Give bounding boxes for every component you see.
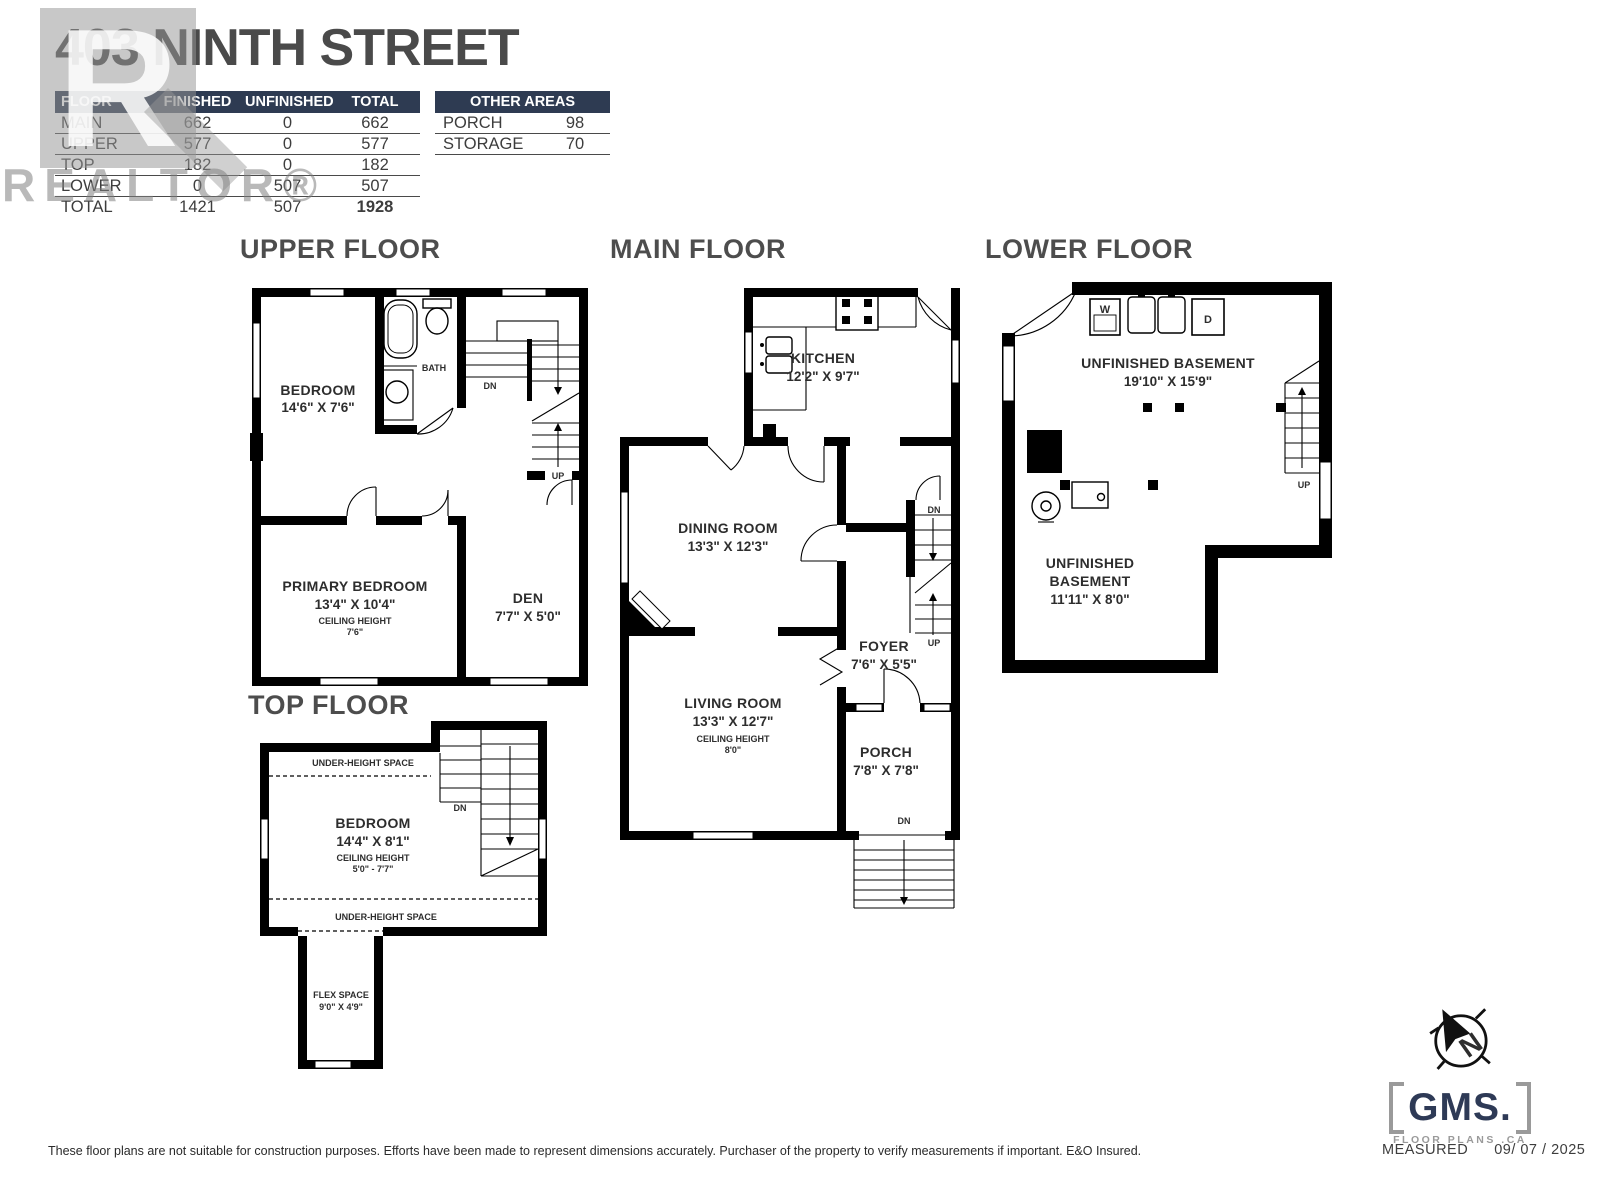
cell-total: 1928 <box>330 198 420 217</box>
dining-room-label: DINING ROOM <box>678 520 778 536</box>
table-row: LOWER 0 507 507 <box>55 176 420 197</box>
washer-label: W <box>1100 304 1111 316</box>
table-row: STORAGE 70 <box>435 134 610 155</box>
cell-area-name: STORAGE <box>435 135 540 154</box>
floor-area-table: FLOOR FINISHED UNFINISHED TOTAL MAIN 662… <box>55 91 420 217</box>
washer-icon: W <box>1090 299 1120 335</box>
ceiling-height-value: 8'0" <box>725 745 741 755</box>
living-room-label: LIVING ROOM <box>684 695 781 711</box>
cell-floor: UPPER <box>55 135 150 154</box>
porch-label: PORCH <box>860 744 912 760</box>
cell-total: 507 <box>330 177 420 196</box>
stairs-dn-label: DN <box>454 803 467 813</box>
lower-entry-door <box>1010 291 1076 336</box>
other-areas-table: OTHER AREAS PORCH 98 STORAGE 70 <box>435 91 610 155</box>
cell-floor: MAIN <box>55 114 150 133</box>
primary-bedroom-dims: 13'4" X 10'4" <box>315 597 396 612</box>
col-header-floor: FLOOR <box>55 94 150 110</box>
toilet-icon <box>423 299 451 334</box>
upper-floor-title: UPPER FLOOR <box>240 234 441 265</box>
ceiling-height-label: CEILING HEIGHT <box>318 616 392 626</box>
ceiling-height-value: 7'6" <box>347 627 363 637</box>
cell-finished: 662 <box>150 114 245 133</box>
den-label: DEN <box>513 590 543 606</box>
cell-total: 662 <box>330 114 420 133</box>
cell-finished: 0 <box>150 177 245 196</box>
other-areas-header: OTHER AREAS <box>435 91 610 113</box>
gms-logo-block: N GMS. FLOOR PLANS .CA <box>1378 998 1542 1146</box>
cell-area-name: PORCH <box>435 114 540 133</box>
stairs-dn-label: DN <box>484 381 497 391</box>
upper-windows <box>253 289 548 685</box>
cell-area-value: 70 <box>540 135 610 154</box>
furnace-icon <box>1060 480 1108 508</box>
basement2-label-line1: UNFINISHED <box>1046 555 1135 571</box>
cell-total: 577 <box>330 135 420 154</box>
ceiling-height-value: 5'0" - 7'7" <box>353 864 394 874</box>
lower-floor-title: LOWER FLOOR <box>985 234 1193 265</box>
ceiling-height-label: CEILING HEIGHT <box>336 853 410 863</box>
gms-logo-text-row: GMS. <box>1389 1082 1531 1134</box>
compass-icon: N <box>1418 998 1502 1082</box>
porch-steps <box>854 835 954 908</box>
cell-unfinished: 0 <box>245 135 330 154</box>
floorplan-page: R REALTOR® 403 NINTH STREET FLOOR FINISH… <box>0 0 1600 1200</box>
bedroom-label: BEDROOM <box>280 382 355 398</box>
basement-label: UNFINISHED BASEMENT <box>1081 355 1255 371</box>
living-room-dims: 13'3" X 12'7" <box>693 714 774 729</box>
stairs-up-label: UP <box>552 471 565 481</box>
measured-label: MEASURED <box>1382 1142 1468 1158</box>
cell-unfinished: 0 <box>245 114 330 133</box>
dryer-icon: D <box>1192 299 1224 335</box>
sink-icon <box>381 366 417 420</box>
cell-floor: TOP <box>55 156 150 175</box>
flex-space-dims: 9'0" X 4'9" <box>319 1002 363 1012</box>
cell-finished: 1421 <box>150 198 245 217</box>
upper-stairs <box>466 321 579 467</box>
dining-room-dims: 13'3" X 12'3" <box>688 539 769 554</box>
lower-stairs <box>1276 361 1319 473</box>
den-dims: 7'7" X 5'0" <box>495 609 561 624</box>
bedroom-label: BEDROOM <box>335 815 410 831</box>
top-walls <box>260 721 547 1069</box>
primary-bedroom-label: PRIMARY BEDROOM <box>282 578 427 594</box>
porch-dn-label: DN <box>898 816 911 826</box>
cell-total: 182 <box>330 156 420 175</box>
laundry-sinks-icon <box>1128 292 1185 333</box>
stairs-dn-label: DN <box>928 505 941 515</box>
top-floor-plan: UNDER-HEIGHT SPACE BEDROOM 14'4" X 8'1" … <box>255 706 555 1074</box>
porch-dims: 7'8" X 7'8" <box>853 763 919 778</box>
cell-finished: 182 <box>150 156 245 175</box>
bath-label: BATH <box>422 363 446 373</box>
table-row: TOP 182 0 182 <box>55 155 420 176</box>
upper-room-labels: BEDROOM 14'6" X 7'6" BATH DN UP PRIMARY … <box>280 363 564 637</box>
measured-date: 09/ 07 / 2025 <box>1494 1142 1585 1158</box>
main-stairs <box>910 515 951 635</box>
foyer-dims: 7'6" X 5'5" <box>851 657 917 672</box>
page-title: 403 NINTH STREET <box>55 18 519 78</box>
fireplace-icon <box>629 591 670 629</box>
stairs-up-label: UP <box>1298 480 1311 490</box>
left-bracket-icon <box>1389 1082 1404 1134</box>
under-height-bottom-label: UNDER-HEIGHT SPACE <box>335 912 437 922</box>
upper-walls <box>250 288 588 686</box>
stove-icon <box>836 293 878 330</box>
kitchen-label: KITCHEN <box>791 350 855 366</box>
stairs-up-label: UP <box>928 638 941 648</box>
kitchen-dims: 12'2" X 9'7" <box>786 369 859 384</box>
foyer-label: FOYER <box>859 638 909 654</box>
table-row: MAIN 662 0 662 <box>55 113 420 134</box>
measured-date-line: MEASURED 09/ 07 / 2025 <box>1382 1142 1585 1158</box>
main-floor-title: MAIN FLOOR <box>610 234 786 265</box>
cell-floor: LOWER <box>55 177 150 196</box>
basement2-dims: 11'11" X 8'0" <box>1050 592 1129 607</box>
col-header-unfinished: UNFINISHED <box>245 94 330 110</box>
cell-finished: 577 <box>150 135 245 154</box>
cell-unfinished: 0 <box>245 156 330 175</box>
kitchen-sink-icon <box>760 337 792 373</box>
bathtub-icon <box>384 300 417 358</box>
main-room-labels: KITCHEN 12'2" X 9'7" DINING ROOM 13'3" X… <box>678 350 940 826</box>
table-total-row: TOTAL 1421 507 1928 <box>55 197 420 217</box>
upper-floor-plan: BEDROOM 14'6" X 7'6" BATH DN UP PRIMARY … <box>250 283 590 695</box>
cell-floor: TOTAL <box>55 198 150 217</box>
lower-walls <box>1002 282 1332 673</box>
table-row: UPPER 577 0 577 <box>55 134 420 155</box>
bedroom-dims: 14'6" X 7'6" <box>281 400 354 415</box>
gms-logo-text: GMS. <box>1404 1088 1516 1128</box>
cell-unfinished: 507 <box>245 198 330 217</box>
cell-unfinished: 507 <box>245 177 330 196</box>
disclaimer-text: These floor plans are not suitable for c… <box>48 1144 1141 1158</box>
flex-space-label: FLEX SPACE <box>313 990 369 1000</box>
support-posts <box>1143 403 1184 490</box>
table-row: PORCH 98 <box>435 113 610 134</box>
dryer-label: D <box>1204 314 1212 326</box>
basement-dims: 19'10" X 15'9" <box>1124 374 1212 389</box>
bedroom-dims: 14'4" X 8'1" <box>336 834 409 849</box>
water-heater-icon <box>1032 492 1060 522</box>
ceiling-height-label: CEILING HEIGHT <box>696 734 770 744</box>
cell-area-value: 98 <box>540 114 610 133</box>
right-bracket-icon <box>1516 1082 1531 1134</box>
col-header-total: TOTAL <box>330 94 420 110</box>
lower-floor-plan: W D UNFINISHED BASEMENT <box>988 266 1348 686</box>
top-room-labels: UNDER-HEIGHT SPACE BEDROOM 14'4" X 8'1" … <box>312 758 466 1012</box>
main-floor-plan: KITCHEN 12'2" X 9'7" DINING ROOM 13'3" X… <box>618 283 968 918</box>
lower-room-labels: UNFINISHED BASEMENT 19'10" X 15'9" UP UN… <box>1046 355 1311 607</box>
under-height-top-label: UNDER-HEIGHT SPACE <box>312 758 414 768</box>
basement2-label-line2: BASEMENT <box>1050 573 1131 589</box>
floor-table-header: FLOOR FINISHED UNFINISHED TOTAL <box>55 91 420 113</box>
col-header-finished: FINISHED <box>150 94 245 110</box>
